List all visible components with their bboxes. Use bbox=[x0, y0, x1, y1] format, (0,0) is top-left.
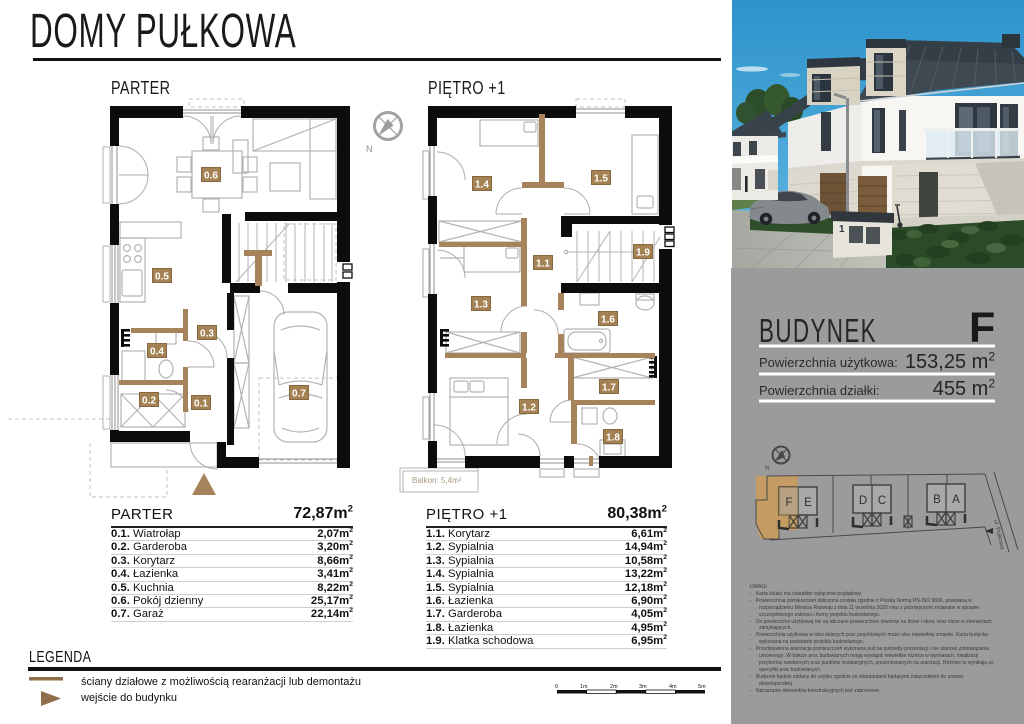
svg-text:1.3: 1.3 bbox=[474, 300, 488, 311]
svg-text:N: N bbox=[366, 144, 373, 154]
svg-text:0.6: 0.6 bbox=[204, 171, 218, 182]
svg-text:1: 1 bbox=[839, 224, 845, 235]
svg-text:D: D bbox=[859, 495, 867, 507]
svg-text:F: F bbox=[785, 497, 792, 509]
svg-text:3m: 3m bbox=[639, 684, 647, 690]
svg-text:Balkon: 5,4m²: Balkon: 5,4m² bbox=[412, 476, 462, 485]
svg-text:0.5: 0.5 bbox=[155, 272, 169, 283]
svg-text:C: C bbox=[878, 495, 886, 507]
svg-text:1.6: 1.6 bbox=[601, 315, 615, 326]
svg-text:2m: 2m bbox=[610, 684, 618, 690]
svg-text:0.1: 0.1 bbox=[194, 399, 208, 410]
svg-text:1.8: 1.8 bbox=[606, 433, 620, 444]
svg-text:1m: 1m bbox=[580, 684, 588, 690]
svg-text:1.2: 1.2 bbox=[522, 403, 536, 414]
svg-text:A: A bbox=[952, 494, 960, 506]
svg-text:5m: 5m bbox=[698, 684, 706, 690]
svg-text:E: E bbox=[804, 497, 812, 509]
svg-text:0.7: 0.7 bbox=[292, 389, 306, 400]
svg-text:1.5: 1.5 bbox=[594, 174, 608, 185]
svg-text:4m: 4m bbox=[669, 684, 677, 690]
svg-text:0.4: 0.4 bbox=[150, 347, 164, 358]
svg-text:0.2: 0.2 bbox=[142, 396, 156, 407]
svg-text:1.7: 1.7 bbox=[602, 383, 616, 394]
svg-text:1.9: 1.9 bbox=[636, 248, 650, 259]
svg-text:0: 0 bbox=[555, 684, 558, 690]
svg-text:1.1: 1.1 bbox=[536, 259, 550, 270]
svg-text:0.3: 0.3 bbox=[200, 329, 214, 340]
svg-text:B: B bbox=[933, 494, 941, 506]
svg-text:1.4: 1.4 bbox=[475, 180, 489, 191]
svg-text:N: N bbox=[765, 465, 770, 472]
